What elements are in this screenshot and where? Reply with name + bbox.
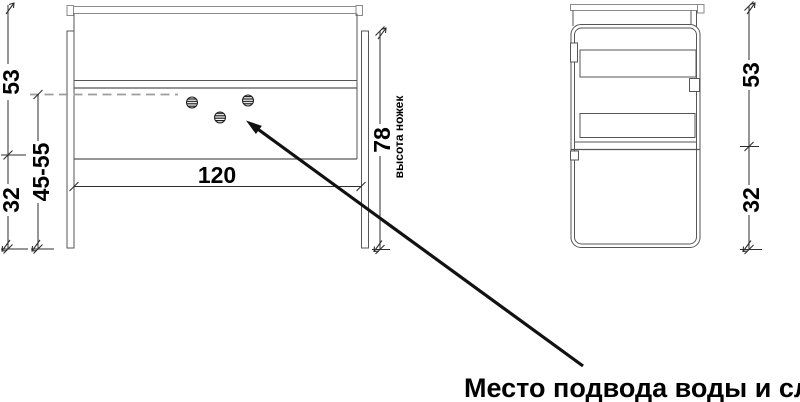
dim-label-front-adjustable-height: 45-55 bbox=[28, 142, 54, 201]
legs-height-note: высота ножек bbox=[392, 95, 406, 179]
front-leg-right bbox=[362, 31, 369, 248]
front-dim-height-78: 78 высота ножек bbox=[369, 27, 406, 255]
hole bbox=[243, 95, 254, 106]
side-clip bbox=[690, 79, 700, 92]
side-hinge-mark-top bbox=[571, 43, 578, 62]
side-hinge-mark-bottom bbox=[571, 151, 579, 160]
front-dim-left-53-32: 53 32 bbox=[0, 3, 28, 254]
hole bbox=[187, 97, 198, 108]
dim-arrow-up bbox=[6, 3, 14, 14]
dim-label-front-leg-height: 32 bbox=[0, 187, 24, 213]
callout-text: Место подвода воды и слив bbox=[464, 373, 800, 402]
front-view bbox=[30, 6, 369, 249]
front-body bbox=[74, 14, 357, 160]
side-countertop bbox=[571, 5, 705, 27]
dim-arrow-up bbox=[378, 28, 386, 39]
dim-arrow-up bbox=[747, 3, 755, 14]
dim-label-front-width: 120 bbox=[198, 162, 236, 188]
side-dim-53-32: 53 32 bbox=[738, 2, 764, 255]
dim-label-front-upper-height: 53 bbox=[0, 69, 24, 95]
water-supply-holes bbox=[187, 95, 254, 123]
front-dim-adjustable-45-55: 45-55 bbox=[28, 90, 54, 254]
drawing-svg: 53 32 45-55 120 78 bbox=[0, 0, 800, 402]
dim-label-side-upper-height: 53 bbox=[738, 62, 764, 88]
side-drawer-rail-bottom bbox=[580, 114, 695, 138]
side-view bbox=[571, 5, 705, 248]
front-countertop bbox=[67, 6, 363, 16]
callout-leader-line bbox=[257, 129, 583, 367]
technical-drawing-canvas: 53 32 45-55 120 78 bbox=[0, 0, 800, 402]
side-countertop-cap bbox=[698, 5, 705, 14]
hole bbox=[215, 112, 226, 123]
front-leg-left bbox=[67, 31, 74, 248]
countertop-left-cap bbox=[67, 6, 74, 16]
side-drawer-rail-top bbox=[580, 50, 696, 77]
callout: Место подвода воды и слив bbox=[246, 121, 800, 402]
dim-label-side-leg-height: 32 bbox=[738, 187, 764, 213]
